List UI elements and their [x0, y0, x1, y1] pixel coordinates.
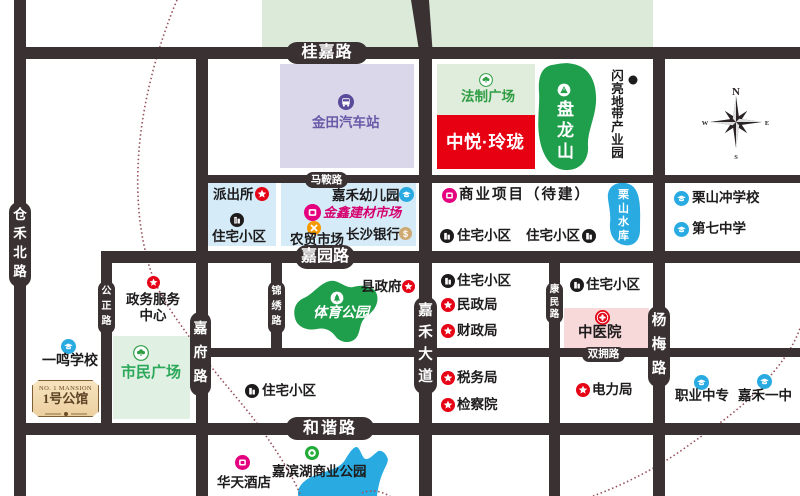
- svg-text:$: $: [403, 229, 408, 239]
- svg-text:E: E: [765, 120, 769, 127]
- svg-text:S: S: [734, 154, 738, 161]
- svg-text:W: W: [702, 120, 709, 127]
